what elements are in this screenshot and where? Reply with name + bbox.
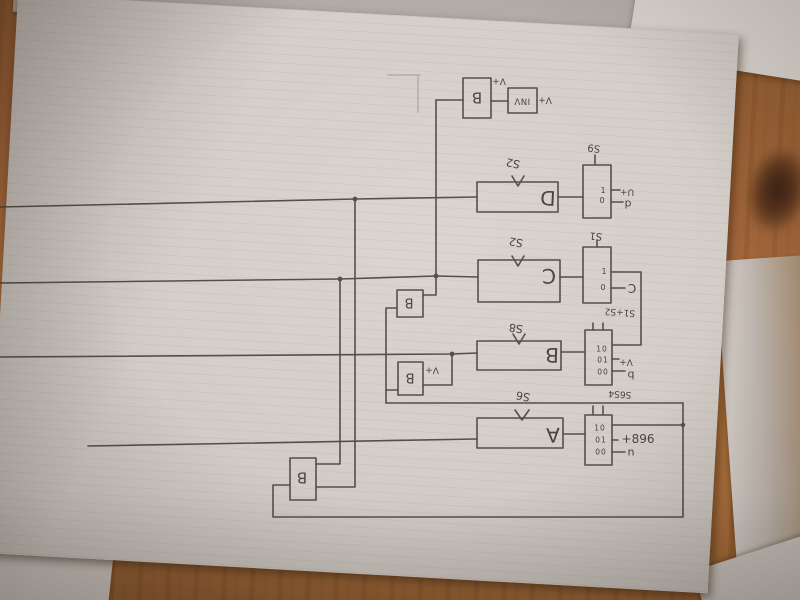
- erased-pencil-marks: [388, 75, 420, 112]
- mux-a-row00-ext-label: u: [628, 448, 635, 459]
- block-b-select-label: S8: [508, 322, 523, 335]
- inv-gate-power-label: V+: [538, 95, 552, 104]
- bus-wires: [0, 197, 478, 446]
- mux-c-pin-0: 0: [600, 284, 605, 292]
- mux-b-row-01: 01: [597, 356, 609, 364]
- mux-a-row-00: 00: [595, 448, 607, 456]
- inverter-low-power-label: V+: [425, 365, 439, 374]
- block-d-select-label: S2: [505, 156, 521, 170]
- mux-b-row-00: 00: [597, 368, 609, 376]
- inverter-top-power-label: V+: [492, 76, 506, 85]
- schematic-drawing: [0, 0, 800, 600]
- inverter-mid-letter: B: [405, 296, 414, 309]
- mux-pin-stubs: [611, 190, 625, 452]
- inverter-box-outlines: [290, 78, 537, 500]
- mux-a-row-01: 01: [595, 436, 607, 444]
- mux-d-pin-1: 1: [600, 187, 605, 195]
- mux-d-pin0-ext-label: d: [625, 199, 632, 210]
- inverter-lone-letter: B: [297, 470, 307, 485]
- mux-a-select-label: S6S4: [608, 388, 631, 399]
- inverter-top-letter: B: [472, 90, 482, 105]
- block-a-select-label: S6: [515, 389, 531, 403]
- photo-of-schematic: D C B A S2 S2 S8 S6 B V+ B B V+ B INV V+…: [0, 0, 800, 600]
- block-output-wires: [558, 197, 585, 434]
- mux-d-pin1-ext-label: U+: [620, 187, 634, 196]
- mux-d-select-label: S9: [587, 141, 601, 153]
- function-block-outlines: [477, 182, 563, 448]
- mux-c-pin-1: 1: [601, 268, 606, 276]
- block-b-letter: B: [545, 345, 559, 365]
- mux-b-row01-ext-label: V+: [619, 357, 633, 366]
- mux-b-row00-ext-label: b: [628, 370, 635, 381]
- mux-a-row01-ext-label: +896: [622, 433, 655, 445]
- mux-d-pin-0: 0: [599, 197, 604, 205]
- block-c-letter: C: [542, 266, 557, 286]
- mux-b-row-10: 10: [596, 345, 608, 353]
- block-c-select-label: S2: [508, 235, 524, 248]
- block-a-letter: A: [546, 425, 560, 445]
- mux-c-pin0-ext-label: C: [628, 282, 636, 294]
- block-d-letter: D: [540, 188, 556, 209]
- mux-c-select-label: S1: [589, 229, 603, 240]
- inv-gate-label: INV: [514, 96, 530, 105]
- inverter-low-letter: B: [406, 371, 415, 384]
- mux-a-row-10: 10: [594, 424, 606, 432]
- mux-b-select-label: S1+S2: [605, 305, 636, 316]
